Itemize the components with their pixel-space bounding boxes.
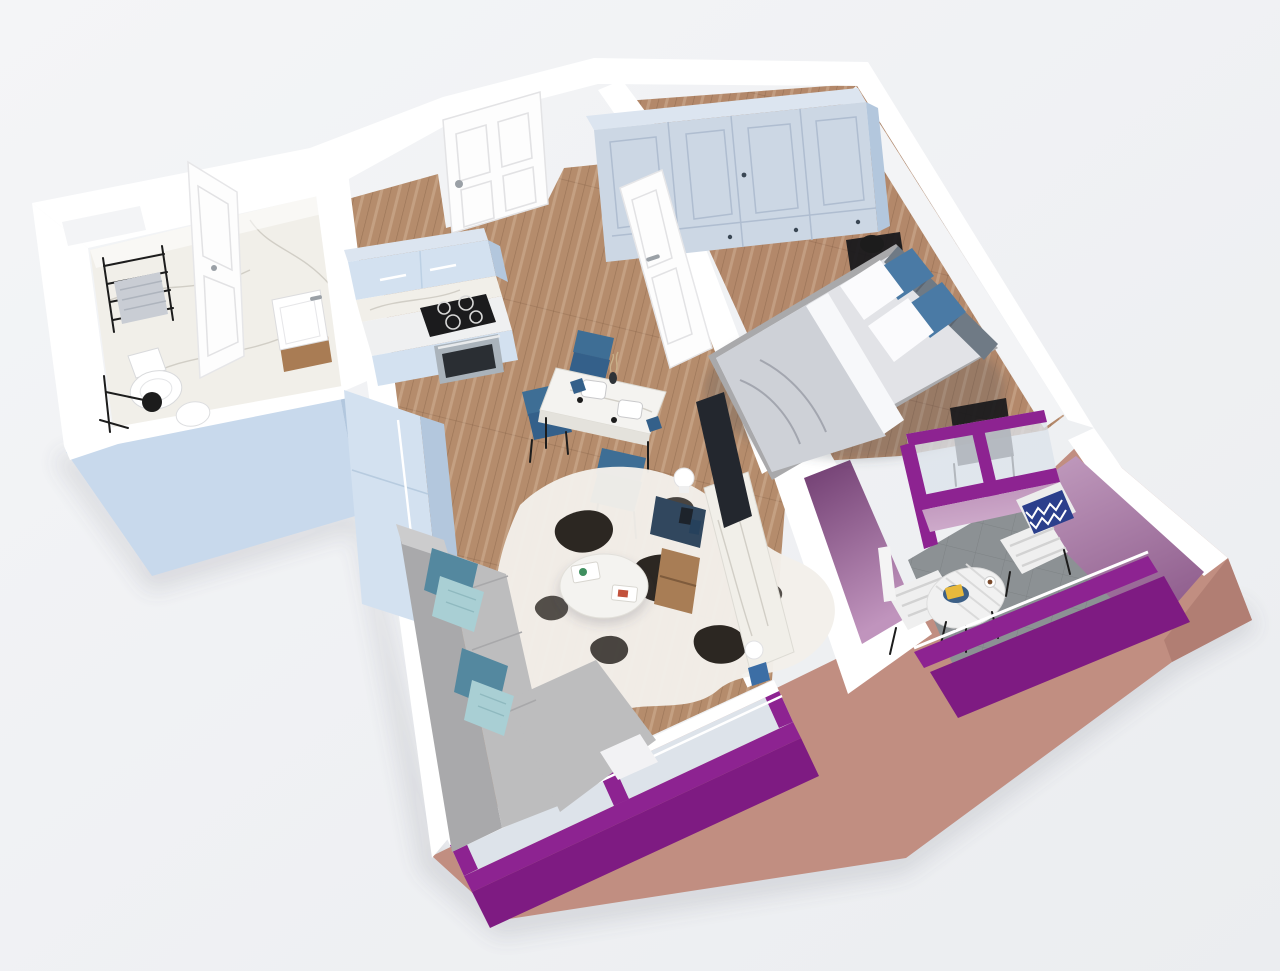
floorplan-stage <box>0 0 1280 971</box>
coffee-table <box>558 554 650 625</box>
plate-2 <box>617 399 643 419</box>
door-handle-icon <box>211 265 217 271</box>
apartment-render <box>0 0 1280 971</box>
vase <box>609 372 617 384</box>
table-lamp-icon <box>745 641 763 659</box>
door-knob-icon <box>455 180 463 188</box>
sphere-lamp-icon <box>674 468 694 488</box>
